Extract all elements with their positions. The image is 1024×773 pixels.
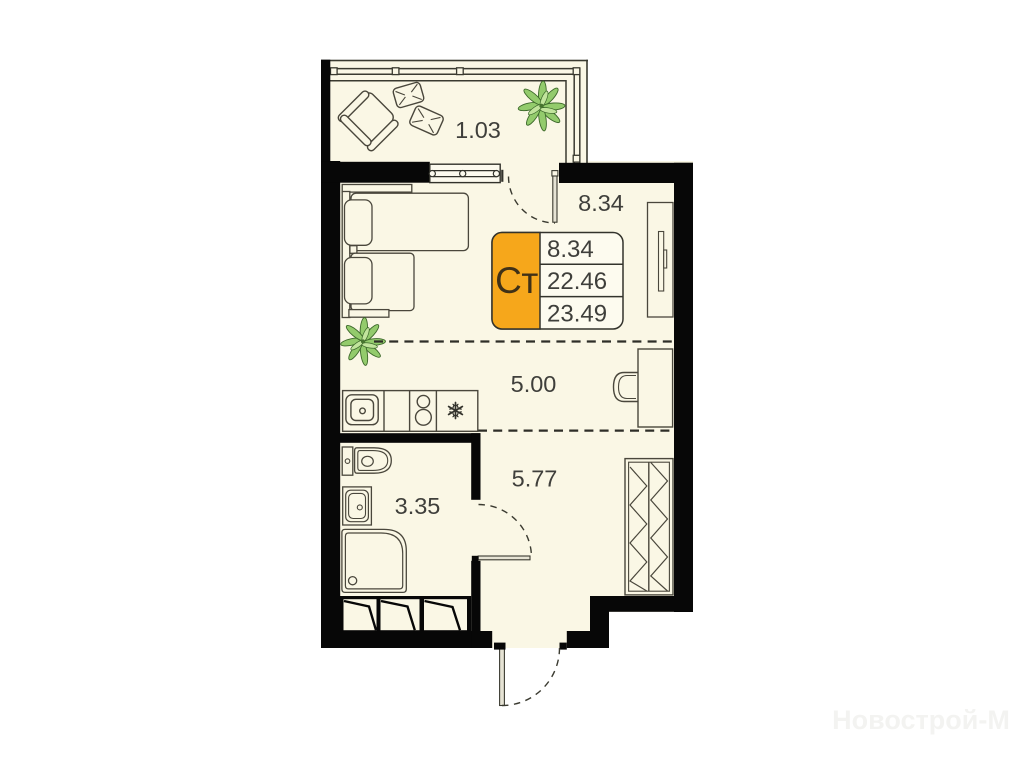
svg-text:22.46: 22.46 [547, 268, 607, 295]
svg-text:8.34: 8.34 [547, 236, 594, 263]
svg-text:Новострой-М: Новострой-М [832, 705, 1010, 735]
svg-text:1.03: 1.03 [455, 117, 501, 143]
svg-text:23.49: 23.49 [547, 300, 607, 327]
svg-text:5.00: 5.00 [511, 371, 557, 397]
svg-text:8.34: 8.34 [578, 190, 624, 216]
svg-text:3.35: 3.35 [395, 493, 441, 519]
svg-text:Ст: Ст [495, 260, 538, 301]
svg-text:5.77: 5.77 [512, 466, 558, 492]
